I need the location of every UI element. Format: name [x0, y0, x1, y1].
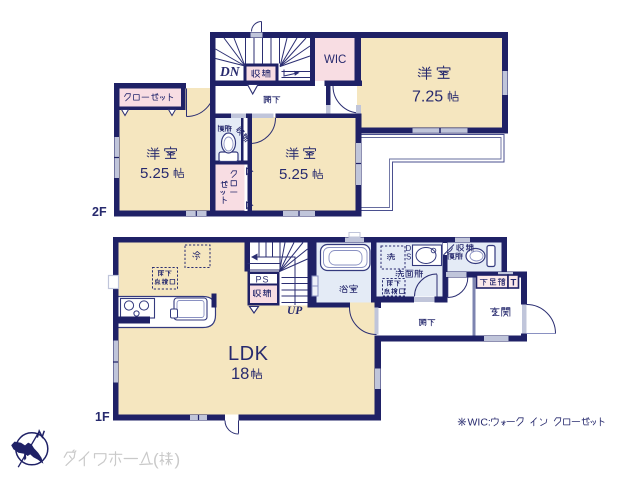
svg-text:S: S	[263, 275, 269, 285]
svg-text:2F: 2F	[92, 205, 107, 219]
svg-text:DN: DN	[219, 64, 241, 79]
svg-text:7.25: 7.25	[412, 89, 443, 106]
svg-text:P: P	[256, 275, 262, 285]
svg-text:T: T	[511, 278, 517, 289]
svg-text:(: (	[153, 450, 159, 469]
svg-text:18: 18	[231, 365, 249, 383]
svg-text:): )	[175, 450, 181, 469]
svg-text:LDK: LDK	[228, 343, 269, 365]
svg-text:1F: 1F	[95, 410, 110, 424]
svg-text:S: S	[406, 253, 411, 262]
svg-text:5.25: 5.25	[140, 165, 169, 182]
svg-text:5.25: 5.25	[279, 166, 308, 183]
svg-text:UP: UP	[287, 305, 303, 317]
svg-text:WIC: WIC	[324, 54, 346, 66]
svg-text:WIC:: WIC:	[468, 417, 491, 429]
